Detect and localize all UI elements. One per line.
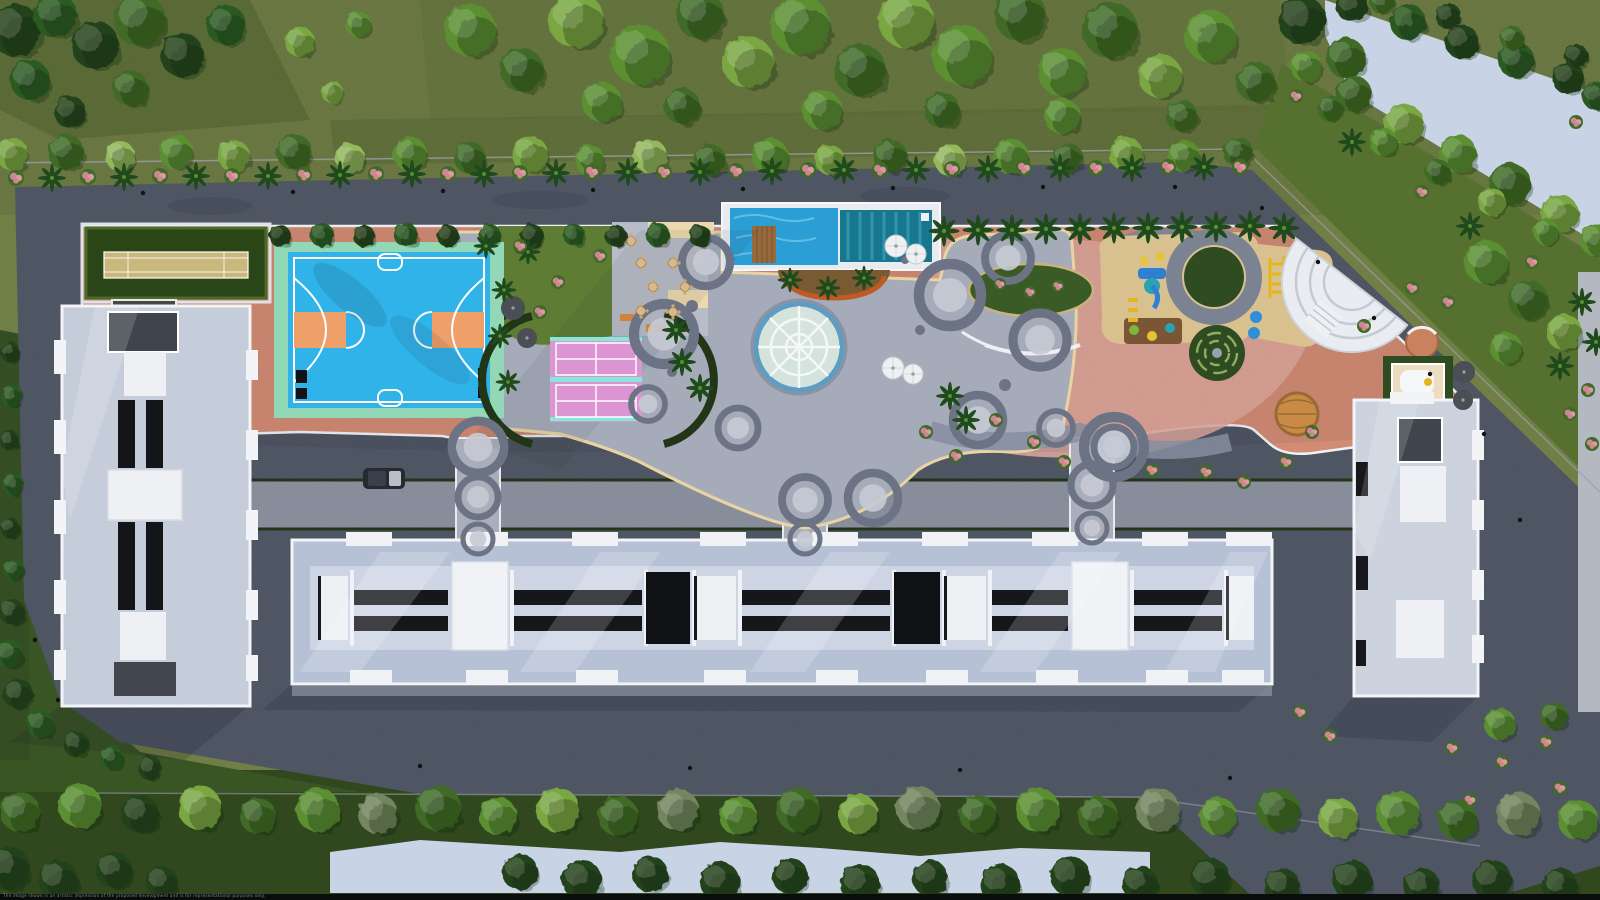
skylight-strip bbox=[146, 400, 163, 468]
palm-tree bbox=[1031, 214, 1062, 245]
roof-block bbox=[944, 576, 986, 640]
palm-tree bbox=[852, 266, 877, 291]
flowering-shrub bbox=[1539, 735, 1553, 749]
light-pole bbox=[1428, 372, 1432, 376]
flowering-shrub bbox=[1563, 407, 1577, 421]
parapet-tab bbox=[1142, 532, 1188, 546]
bench bbox=[296, 370, 307, 383]
roof-block bbox=[694, 576, 736, 640]
palm-tree bbox=[816, 276, 841, 301]
palm-tree bbox=[902, 156, 930, 184]
light-pole bbox=[56, 698, 60, 702]
net-line bbox=[550, 337, 642, 341]
dome-mullions bbox=[758, 306, 840, 388]
palm-tree bbox=[963, 215, 994, 246]
hedge-maze bbox=[1189, 325, 1245, 381]
pillow bbox=[1424, 378, 1432, 386]
light-pole bbox=[1260, 206, 1264, 210]
parapet-tab bbox=[572, 532, 618, 546]
skylight-strip bbox=[118, 400, 135, 468]
flowering-shrub bbox=[919, 425, 933, 439]
lift-core bbox=[452, 562, 508, 650]
light-pole bbox=[1173, 185, 1177, 189]
palm-tree bbox=[1167, 212, 1198, 243]
palm-tree bbox=[662, 316, 690, 344]
flowering-shrub bbox=[656, 164, 672, 180]
palm-tree bbox=[974, 155, 1002, 183]
flowering-shrub bbox=[944, 161, 960, 177]
parapet-tab bbox=[700, 532, 746, 546]
palm-tree bbox=[929, 216, 960, 247]
flowering-shrub bbox=[1052, 280, 1064, 292]
flowering-shrub bbox=[440, 166, 456, 182]
flowering-shrub bbox=[1569, 115, 1583, 129]
flowering-shrub bbox=[152, 168, 168, 184]
palm-tree bbox=[936, 382, 964, 410]
palm-tree bbox=[470, 160, 498, 188]
flowering-shrub bbox=[296, 167, 312, 183]
light-pole bbox=[688, 766, 692, 770]
long-building bbox=[292, 532, 1272, 696]
paving-dot bbox=[915, 325, 925, 335]
parapet-tab bbox=[922, 532, 968, 546]
flowering-shrub bbox=[1585, 437, 1599, 451]
flowering-shrub bbox=[1199, 465, 1213, 479]
flowering-shrub bbox=[1463, 793, 1477, 807]
flowering-shrub bbox=[584, 164, 600, 180]
gray-umbrella bbox=[1453, 361, 1475, 383]
flowering-shrub bbox=[1323, 729, 1337, 743]
lift-core bbox=[124, 352, 166, 396]
disclaimer-fineprint: The image shown is an artistic impressio… bbox=[3, 893, 266, 898]
car bbox=[363, 468, 405, 489]
palm-tree bbox=[1546, 352, 1574, 380]
core-block bbox=[120, 612, 166, 660]
spring-rider bbox=[1248, 327, 1260, 339]
box-cricket-turf bbox=[82, 224, 270, 302]
key-west bbox=[294, 312, 346, 348]
light-pole bbox=[891, 186, 895, 190]
palm-tree bbox=[254, 162, 282, 190]
flowering-shrub bbox=[1027, 435, 1041, 449]
flowering-shrub bbox=[1279, 455, 1293, 469]
flowering-shrub bbox=[1016, 160, 1032, 176]
palm-tree bbox=[110, 163, 138, 191]
flowering-shrub bbox=[949, 449, 963, 463]
light-pole bbox=[591, 188, 595, 192]
flowering-shrub bbox=[368, 166, 384, 182]
core-block bbox=[108, 470, 182, 520]
parapet-tab bbox=[926, 670, 968, 684]
bench bbox=[296, 388, 307, 399]
flowering-shrub bbox=[1145, 463, 1159, 477]
white-umbrella bbox=[903, 364, 923, 384]
parapet-tab bbox=[1222, 670, 1264, 684]
tower-east bbox=[1354, 392, 1484, 696]
light-pole bbox=[1228, 776, 1232, 780]
palm-tree bbox=[1190, 153, 1218, 181]
basketball-court bbox=[274, 242, 504, 418]
palm-tree bbox=[1456, 212, 1484, 240]
flowering-shrub bbox=[512, 165, 528, 181]
site-plan-canvas bbox=[0, 0, 1600, 900]
building-apron bbox=[292, 686, 1272, 696]
light-pole bbox=[33, 638, 37, 642]
flowering-shrub bbox=[533, 305, 547, 319]
flowering-shrub bbox=[1057, 455, 1071, 469]
tree-shadow bbox=[168, 197, 252, 215]
flowering-shrub bbox=[1160, 159, 1176, 175]
palm-tree bbox=[686, 158, 714, 186]
flowering-shrub bbox=[8, 170, 24, 186]
flowering-shrub bbox=[1581, 383, 1595, 397]
palm-tree bbox=[1133, 213, 1164, 244]
palm-tree bbox=[1235, 211, 1266, 242]
palm-tree bbox=[496, 370, 521, 395]
skylight-strip bbox=[146, 522, 163, 610]
flowering-shrub bbox=[1525, 255, 1539, 269]
roof-void bbox=[894, 572, 940, 644]
gray-umbrella bbox=[517, 328, 537, 348]
roof-louvre bbox=[114, 662, 176, 696]
flowering-shrub bbox=[80, 169, 96, 185]
pool-lounger bbox=[921, 213, 929, 221]
palm-tree bbox=[1269, 213, 1300, 244]
palm-tree bbox=[758, 157, 786, 185]
palm-tree bbox=[686, 374, 714, 402]
palm-tree bbox=[1099, 213, 1130, 244]
light-pole bbox=[1372, 316, 1376, 320]
light-pole bbox=[441, 189, 445, 193]
skylight-dome bbox=[752, 300, 846, 394]
palm-tree bbox=[398, 160, 426, 188]
palm-tree bbox=[542, 159, 570, 187]
flowering-shrub bbox=[989, 413, 1003, 427]
core-block bbox=[1400, 466, 1446, 522]
palm-tree bbox=[1201, 212, 1232, 243]
palm-tree bbox=[1046, 154, 1074, 182]
flowering-shrub bbox=[1237, 475, 1251, 489]
roof-bar bbox=[510, 570, 514, 646]
palm-tree bbox=[488, 324, 513, 349]
flowering-shrub bbox=[994, 278, 1006, 290]
flowering-shrub bbox=[1088, 160, 1104, 176]
flowering-shrub bbox=[1415, 185, 1429, 199]
parapet-tab bbox=[576, 670, 618, 684]
site-plan-render: The image shown is an artistic impressio… bbox=[0, 0, 1600, 900]
core-block bbox=[1396, 600, 1444, 658]
roof-bar bbox=[738, 570, 742, 646]
parapet-tab bbox=[704, 670, 746, 684]
light-pole bbox=[418, 764, 422, 768]
tower-west bbox=[54, 306, 258, 706]
palm-tree bbox=[997, 215, 1028, 246]
light-pole bbox=[1518, 518, 1522, 522]
palm-tree bbox=[1065, 214, 1096, 245]
flowering-shrub bbox=[513, 239, 527, 253]
parapet-tab bbox=[1032, 532, 1078, 546]
palm-tree bbox=[326, 161, 354, 189]
flowering-shrub bbox=[1293, 705, 1307, 719]
flowering-shrub bbox=[1553, 781, 1567, 795]
palm-tree bbox=[492, 278, 517, 303]
lawn-circle bbox=[1184, 247, 1244, 307]
parapet-tab bbox=[466, 670, 508, 684]
light-pole bbox=[1482, 432, 1486, 436]
net-line bbox=[550, 377, 642, 382]
roof-bar bbox=[1130, 570, 1134, 646]
flowering-shrub bbox=[1232, 159, 1248, 175]
palm-tree bbox=[668, 348, 696, 376]
palm-tree bbox=[614, 158, 642, 186]
spring-rider bbox=[1250, 311, 1262, 323]
palm-tree bbox=[778, 268, 803, 293]
light-pole bbox=[141, 191, 145, 195]
parapet-tab bbox=[1146, 670, 1188, 684]
white-umbrella bbox=[906, 244, 926, 264]
flowering-shrub bbox=[1441, 295, 1455, 309]
palm-tree bbox=[38, 164, 66, 192]
paving-dot bbox=[999, 379, 1011, 391]
flowering-shrub bbox=[1357, 319, 1371, 333]
parapet-tab bbox=[1036, 670, 1078, 684]
flowering-shrub bbox=[1024, 286, 1036, 298]
skylight-strip bbox=[118, 522, 135, 610]
flowering-shrub bbox=[593, 249, 607, 263]
flowering-shrub bbox=[551, 275, 565, 289]
flowering-shrub bbox=[1305, 425, 1319, 439]
light-pole bbox=[1316, 260, 1320, 264]
white-umbrella bbox=[882, 357, 904, 379]
parapet-tab bbox=[816, 670, 858, 684]
palm-tree bbox=[182, 162, 210, 190]
parapet-tab bbox=[1226, 532, 1272, 546]
light-pole bbox=[291, 190, 295, 194]
flowering-shrub bbox=[1405, 281, 1419, 295]
palm-tree bbox=[952, 406, 980, 434]
light-pole bbox=[741, 187, 745, 191]
flowering-shrub bbox=[1445, 741, 1459, 755]
flowering-shrub bbox=[1289, 89, 1303, 103]
flowering-shrub bbox=[800, 162, 816, 178]
parapet-tab bbox=[350, 670, 392, 684]
palm-tree bbox=[1118, 154, 1146, 182]
flowering-shrub bbox=[224, 168, 240, 184]
gray-umbrella bbox=[1453, 390, 1473, 410]
white-umbrella bbox=[885, 235, 907, 257]
flowering-shrub bbox=[1495, 755, 1509, 769]
flowering-shrub bbox=[728, 163, 744, 179]
paving-dot bbox=[686, 300, 698, 312]
light-pole bbox=[958, 768, 962, 772]
parapet-tab bbox=[346, 532, 392, 546]
flowering-shrub bbox=[872, 162, 888, 178]
palm-tree bbox=[1568, 288, 1596, 316]
palm-tree bbox=[474, 234, 499, 259]
roof-bar bbox=[988, 570, 992, 646]
light-pole bbox=[1041, 185, 1045, 189]
roof-void bbox=[646, 572, 690, 644]
tree-shadow bbox=[492, 191, 588, 209]
palm-tree bbox=[830, 156, 858, 184]
palm-tree bbox=[1338, 128, 1366, 156]
